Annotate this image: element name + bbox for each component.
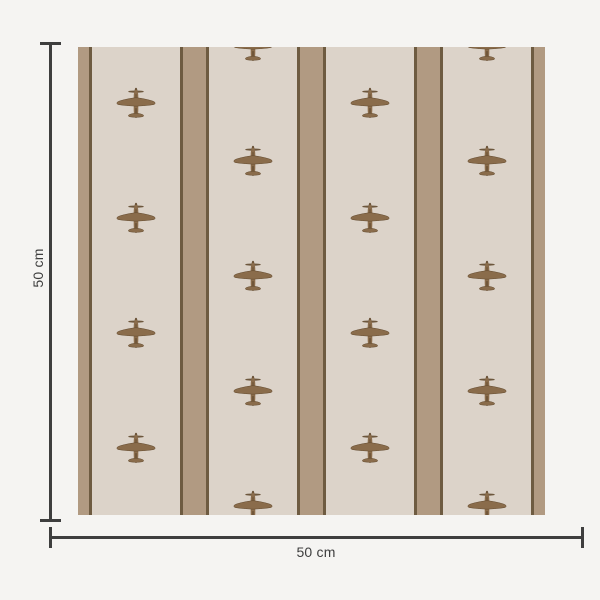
horizontal-dimension-label: 50 cm [50,544,582,560]
horizontal-dimension-line [50,536,582,539]
tan-stripe [417,47,440,515]
airplane-icon [233,145,273,179]
tan-stripe [78,47,89,515]
airplane-icon [467,375,507,409]
vertical-dimension-line [49,43,52,520]
tan-stripe [183,47,206,515]
airplane-icon [350,202,390,236]
tan-stripe [534,47,545,515]
airplane-icon [116,202,156,236]
pattern-swatch-illustration: 50 cm 50 cm [0,0,600,600]
airplane-icon [467,490,507,515]
tan-stripe [300,47,323,515]
airplane-icon [467,47,507,64]
airplane-icon [233,490,273,515]
airplane-icon [116,317,156,351]
wallpaper-swatch [78,47,545,515]
vertical-dimension-cap-top [40,42,61,45]
airplane-icon [116,432,156,466]
airplane-icon [233,47,273,64]
vertical-dimension-label: 50 cm [30,246,46,290]
vertical-dimension-cap-bottom [40,519,61,522]
airplane-icon [233,375,273,409]
airplane-icon [350,432,390,466]
airplane-icon [350,317,390,351]
airplane-icon [350,87,390,121]
airplane-icon [116,87,156,121]
airplane-icon [467,260,507,294]
airplane-icon [467,145,507,179]
airplane-icon [233,260,273,294]
